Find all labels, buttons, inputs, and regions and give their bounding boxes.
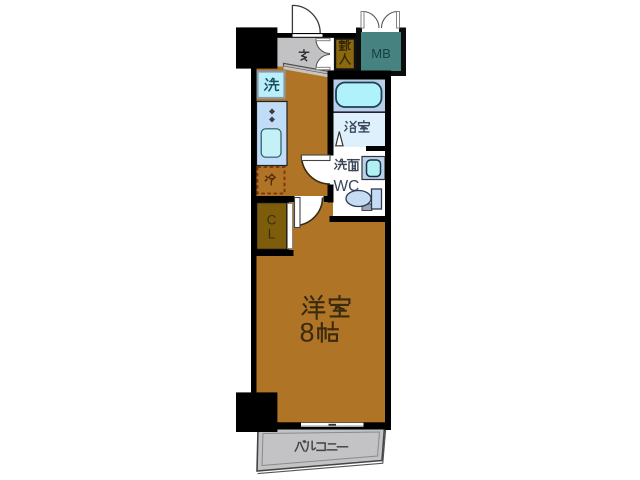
svg-text:MB: MB	[371, 46, 391, 61]
svg-text:8: 8	[300, 318, 315, 348]
svg-text:C: C	[267, 213, 277, 228]
svg-text:L: L	[268, 227, 276, 242]
